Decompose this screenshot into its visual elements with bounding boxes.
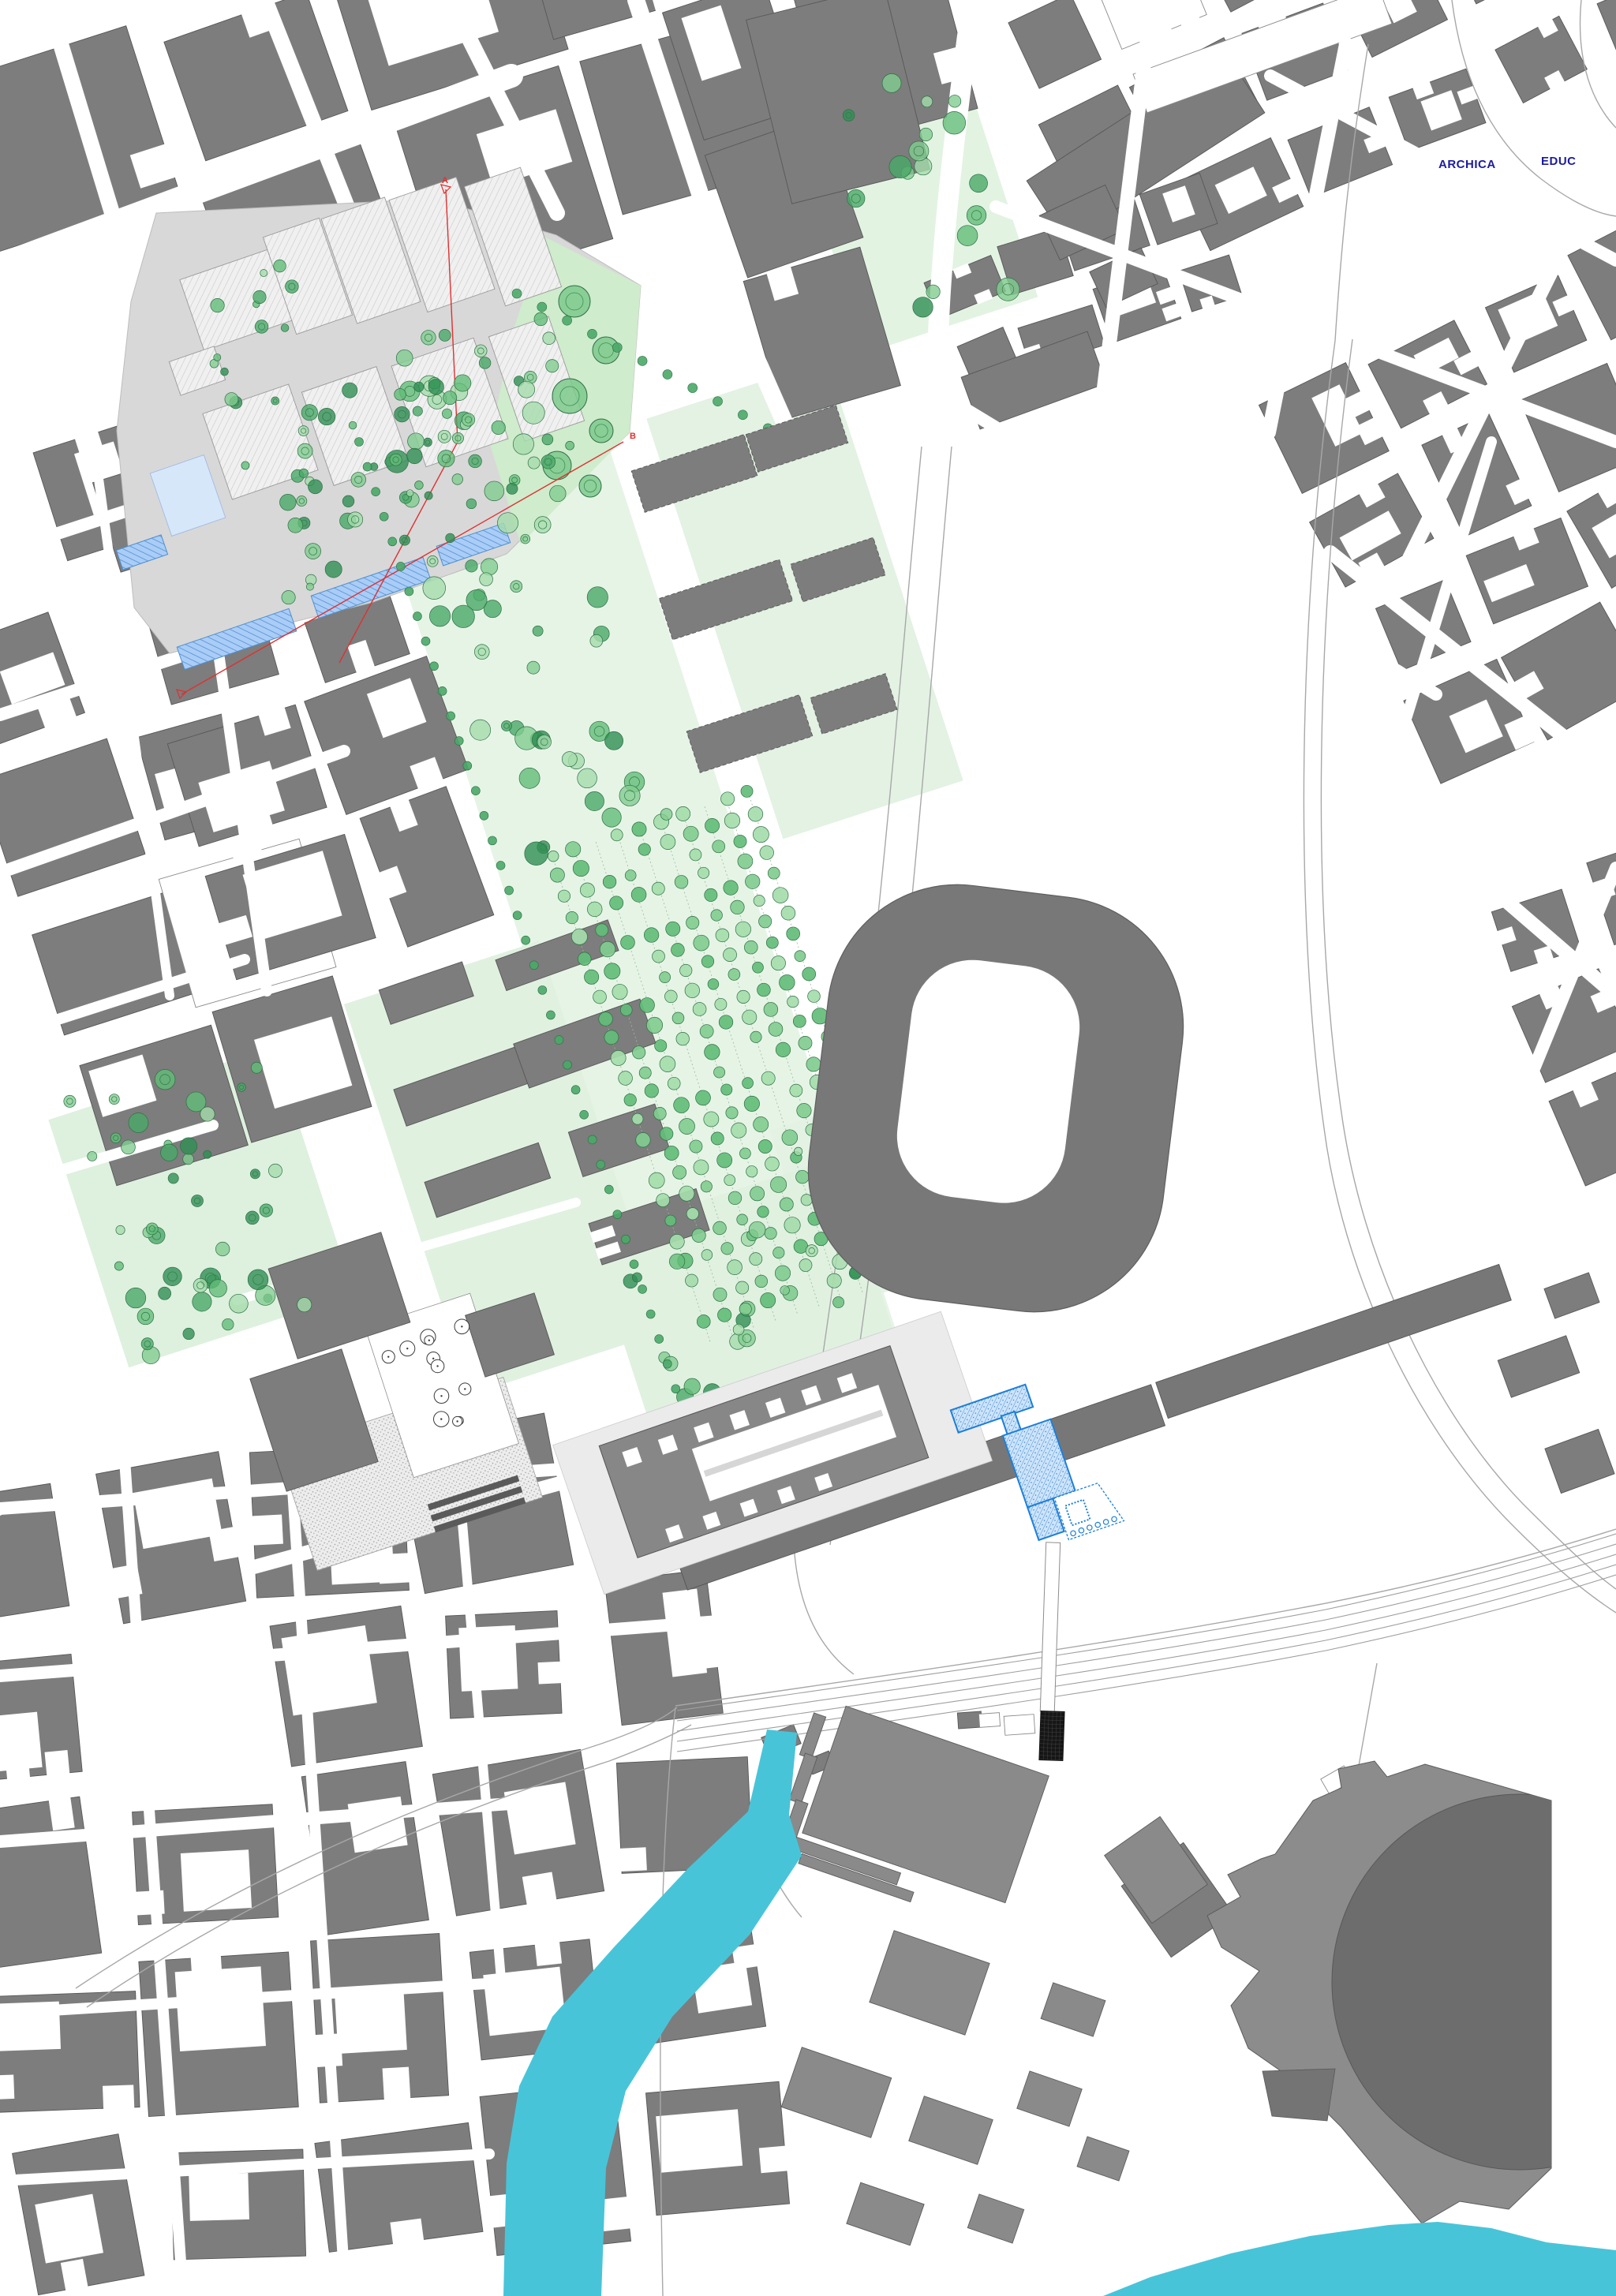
tree	[728, 1260, 743, 1275]
tree	[919, 128, 933, 141]
tree	[793, 1015, 806, 1027]
tree	[714, 1067, 725, 1078]
tree	[761, 1292, 776, 1307]
tree	[780, 974, 795, 990]
tree	[694, 935, 709, 951]
tree	[578, 768, 597, 788]
tree	[676, 806, 690, 821]
street-tree	[471, 787, 480, 795]
tree	[701, 955, 714, 968]
tree	[521, 534, 530, 544]
building	[967, 2194, 1023, 2243]
city-block	[432, 1749, 604, 1917]
tree	[686, 1208, 698, 1220]
tree	[750, 1253, 762, 1266]
watermark: ARCHICAEDUC	[1438, 155, 1577, 171]
tree	[754, 1117, 769, 1132]
tree	[957, 226, 978, 246]
pier	[1039, 1543, 1064, 1761]
street-tree	[529, 961, 538, 970]
tree	[260, 1204, 272, 1217]
tree	[297, 443, 312, 458]
tree	[970, 174, 988, 193]
tree	[770, 1176, 786, 1192]
tree	[537, 735, 552, 750]
city-block	[1193, 0, 1315, 13]
tree	[238, 1083, 246, 1092]
tree	[632, 822, 646, 836]
tree	[604, 963, 620, 979]
tree	[566, 911, 578, 923]
road-line	[675, 1529, 1616, 1706]
tree	[507, 483, 518, 494]
tree	[717, 1153, 732, 1168]
tree	[528, 457, 540, 469]
tree	[446, 533, 455, 543]
tree	[726, 1107, 738, 1119]
tree	[686, 1274, 698, 1287]
tree	[527, 661, 540, 674]
tree	[161, 1144, 178, 1161]
tree	[750, 1031, 761, 1042]
street-tree	[571, 1086, 580, 1094]
tree	[711, 1132, 724, 1145]
tree	[922, 96, 933, 107]
tree	[214, 353, 221, 361]
tree	[110, 1133, 121, 1143]
tree	[694, 1160, 709, 1175]
tree	[772, 888, 788, 903]
tree	[704, 1112, 719, 1127]
tree	[349, 421, 357, 429]
tree	[248, 1270, 268, 1290]
tree	[683, 826, 698, 841]
tree	[299, 469, 308, 477]
tree	[245, 1211, 259, 1225]
tree	[672, 1012, 684, 1024]
street-tree	[587, 329, 597, 338]
tree	[193, 1278, 208, 1292]
tree	[427, 555, 438, 567]
tree	[671, 944, 685, 957]
tree	[700, 1025, 713, 1038]
tree	[773, 1247, 784, 1258]
tree	[474, 345, 487, 357]
street-tree	[405, 587, 413, 596]
tree	[600, 941, 615, 957]
tree	[752, 962, 763, 973]
tree	[731, 900, 745, 914]
tree	[428, 380, 443, 395]
tree	[790, 1084, 802, 1097]
tree	[466, 560, 477, 572]
city-block	[1446, 0, 1538, 5]
tree	[644, 928, 659, 943]
tree	[141, 1338, 153, 1350]
street-tree	[663, 370, 672, 380]
tree	[639, 1067, 651, 1079]
tree	[191, 1195, 203, 1206]
tree	[679, 1186, 694, 1201]
street-tree	[505, 886, 514, 895]
street-tree	[537, 302, 547, 312]
watermark-text: ARCHICA	[1438, 158, 1496, 171]
tree	[209, 1280, 226, 1297]
tree	[736, 1281, 749, 1294]
tree	[116, 1225, 125, 1234]
tree	[764, 1003, 778, 1017]
tree	[546, 360, 559, 372]
tree	[250, 1169, 260, 1179]
tree	[603, 875, 616, 888]
rail-line	[677, 1554, 1616, 1731]
tree	[653, 1107, 666, 1120]
tree	[221, 368, 229, 376]
tree	[611, 829, 623, 841]
tree	[479, 357, 491, 369]
tree	[225, 393, 238, 406]
tree	[429, 606, 450, 626]
street-tree	[388, 537, 397, 546]
tree	[708, 978, 719, 989]
tree	[558, 890, 570, 902]
tree	[799, 1259, 812, 1272]
tree	[794, 1147, 802, 1155]
tree	[843, 110, 855, 122]
street-tree	[363, 462, 372, 471]
tree	[926, 285, 940, 298]
tree	[421, 331, 436, 346]
tree	[215, 1242, 230, 1256]
tree	[795, 951, 806, 962]
street-tree	[454, 737, 463, 746]
tree	[746, 874, 760, 888]
tree	[748, 806, 763, 821]
tree	[579, 475, 601, 497]
city-block	[446, 1610, 563, 1718]
tree	[757, 1206, 769, 1217]
city-block	[1494, 15, 1588, 105]
tree	[125, 1288, 146, 1308]
tree	[705, 1045, 720, 1060]
street-tree	[430, 662, 439, 671]
tree	[610, 896, 623, 910]
tree	[308, 480, 322, 494]
tree	[656, 1194, 670, 1207]
street-tree	[396, 562, 405, 570]
tree	[631, 888, 646, 903]
street-tree	[546, 1011, 555, 1019]
tree	[260, 269, 267, 276]
street-tree	[597, 1160, 605, 1169]
tree	[163, 1267, 182, 1286]
tree	[713, 1288, 727, 1301]
city-block	[1008, 0, 1102, 88]
building	[1545, 1429, 1614, 1493]
tree	[717, 1308, 731, 1322]
tree	[743, 1010, 757, 1024]
tree	[749, 1221, 765, 1238]
tree	[200, 1107, 215, 1121]
tree	[758, 1139, 772, 1153]
tree	[660, 809, 672, 821]
tree	[466, 499, 477, 509]
tree	[443, 391, 457, 405]
building	[1004, 1715, 1035, 1736]
tree	[781, 906, 795, 920]
tree	[679, 964, 692, 977]
tree	[802, 967, 816, 981]
tree	[744, 1096, 759, 1111]
tree	[827, 1273, 841, 1288]
tree	[548, 851, 559, 862]
city-block	[646, 2081, 791, 2216]
tree	[604, 731, 623, 750]
tree	[395, 389, 406, 401]
tree	[621, 936, 635, 950]
tree	[241, 462, 249, 469]
tree	[674, 1098, 690, 1113]
tree	[755, 1275, 768, 1288]
tree	[768, 867, 780, 879]
tree	[653, 950, 665, 963]
building	[847, 2182, 924, 2246]
tree	[271, 397, 279, 405]
tree	[286, 280, 299, 294]
tree	[619, 1071, 633, 1086]
tree	[573, 860, 589, 876]
tree	[692, 1228, 705, 1242]
section-label: B	[630, 432, 636, 441]
tree	[474, 645, 489, 660]
tree	[721, 1243, 733, 1255]
tree	[585, 791, 604, 810]
tree	[253, 290, 266, 303]
tree	[724, 881, 738, 895]
tree	[701, 1250, 713, 1261]
tree	[655, 1040, 667, 1052]
tree	[183, 1154, 194, 1165]
tree	[550, 485, 567, 502]
tree	[541, 455, 555, 469]
tree	[664, 990, 677, 1003]
tree	[847, 189, 865, 207]
tree	[589, 419, 613, 443]
tree	[775, 1266, 790, 1281]
tree	[909, 141, 929, 161]
tree	[571, 929, 587, 944]
street-tree	[522, 936, 530, 944]
tree	[743, 1078, 754, 1089]
tree	[690, 1140, 702, 1153]
tree	[715, 998, 727, 1010]
street-tree	[438, 686, 447, 695]
street-tree	[421, 637, 430, 645]
tree	[584, 970, 598, 984]
tree	[180, 1138, 196, 1154]
stadium	[794, 869, 1199, 1326]
tree	[624, 1094, 636, 1105]
tree	[787, 996, 799, 1008]
tree	[731, 1123, 746, 1138]
tree	[159, 1287, 171, 1299]
tree	[638, 843, 650, 855]
section-label: A	[442, 176, 448, 185]
street-tree	[604, 1185, 613, 1194]
tree	[325, 561, 342, 578]
tree	[711, 910, 723, 922]
tree	[806, 1245, 817, 1257]
tree	[632, 1046, 645, 1059]
tree	[649, 1172, 664, 1188]
tree	[720, 792, 734, 806]
rail-line	[677, 1534, 1616, 1711]
tree	[733, 1324, 744, 1335]
street-tree	[671, 1385, 680, 1393]
tree	[769, 1023, 783, 1037]
tree	[698, 867, 709, 878]
building	[1077, 2137, 1129, 2181]
bay-water	[1103, 2222, 1616, 2296]
city-block	[0, 739, 145, 896]
street-tree	[588, 1135, 597, 1144]
city-block	[13, 2134, 145, 2296]
tree	[660, 1127, 673, 1141]
tree	[593, 990, 607, 1004]
tree	[665, 1215, 676, 1226]
street-tree	[613, 1210, 622, 1219]
tree	[525, 842, 548, 866]
street-tree	[555, 1036, 563, 1045]
tree	[109, 1094, 119, 1105]
building	[978, 1713, 1000, 1728]
tree	[268, 1164, 282, 1177]
tree	[497, 513, 518, 533]
tree	[757, 983, 771, 997]
rail-line	[677, 1544, 1616, 1721]
street-tree	[738, 410, 747, 420]
street-tree	[538, 985, 547, 994]
street-tree	[480, 811, 488, 820]
tree	[741, 785, 753, 797]
tree	[562, 752, 577, 767]
tree	[348, 512, 363, 527]
pier-end	[1039, 1711, 1064, 1760]
tree	[501, 720, 511, 731]
tree	[787, 927, 800, 940]
tree	[193, 1292, 211, 1311]
tree	[612, 984, 627, 999]
tree	[759, 915, 772, 928]
tree	[761, 1071, 775, 1085]
tree	[230, 1294, 249, 1313]
tree	[550, 868, 564, 882]
road-line	[794, 1543, 854, 1674]
tree	[997, 278, 1019, 301]
tree	[513, 434, 533, 454]
tree	[744, 940, 757, 954]
tree	[462, 413, 474, 426]
building	[781, 2047, 892, 2138]
tree	[351, 473, 366, 488]
tree	[280, 494, 297, 510]
tree	[470, 720, 491, 740]
tree	[566, 842, 581, 857]
tree	[948, 95, 961, 107]
city-block	[1388, 67, 1487, 151]
tree	[114, 1262, 123, 1270]
street-tree	[512, 289, 522, 298]
tree	[298, 426, 309, 436]
stadium-field	[890, 953, 1087, 1210]
tree	[750, 1187, 764, 1201]
tree	[666, 922, 680, 936]
tree	[281, 324, 289, 332]
tree	[396, 350, 413, 366]
tree	[211, 298, 224, 312]
tree	[146, 1223, 158, 1235]
tree	[728, 1191, 742, 1205]
tree	[596, 924, 608, 937]
tree	[274, 260, 286, 272]
tree	[943, 111, 966, 134]
tree	[439, 329, 451, 341]
tree	[737, 990, 750, 1003]
tree	[664, 1146, 679, 1160]
street-tree	[612, 342, 622, 352]
tree	[724, 1175, 735, 1186]
watermark-text: EDUC	[1541, 155, 1577, 168]
tree	[705, 818, 719, 832]
tree	[559, 286, 590, 317]
tree	[522, 402, 544, 424]
tree	[646, 1017, 662, 1033]
tree	[679, 1119, 694, 1135]
city-block	[358, 785, 494, 948]
tree	[625, 870, 636, 881]
tree	[424, 438, 432, 447]
tree	[305, 544, 321, 559]
street-tree	[663, 1359, 671, 1368]
tree	[442, 409, 451, 418]
tree	[578, 952, 591, 966]
tree	[390, 454, 402, 466]
tree	[288, 518, 303, 533]
tree	[452, 432, 463, 443]
street-tree	[621, 1235, 630, 1243]
tree	[686, 916, 699, 929]
tree	[342, 383, 357, 398]
tree	[713, 1221, 727, 1235]
building	[870, 1931, 989, 2035]
tree	[534, 312, 548, 326]
tree	[552, 379, 587, 413]
tree	[660, 1056, 675, 1072]
tree	[780, 1286, 790, 1296]
tree	[406, 490, 413, 497]
tree	[306, 583, 313, 590]
tree	[739, 1148, 750, 1159]
tree	[668, 1077, 680, 1090]
city-block	[95, 1451, 248, 1624]
tree	[713, 840, 725, 853]
tree	[734, 835, 746, 847]
tree	[721, 1084, 732, 1095]
tree	[760, 846, 774, 860]
tree	[737, 1214, 748, 1225]
tree	[696, 1090, 711, 1105]
street-tree	[630, 1260, 638, 1269]
